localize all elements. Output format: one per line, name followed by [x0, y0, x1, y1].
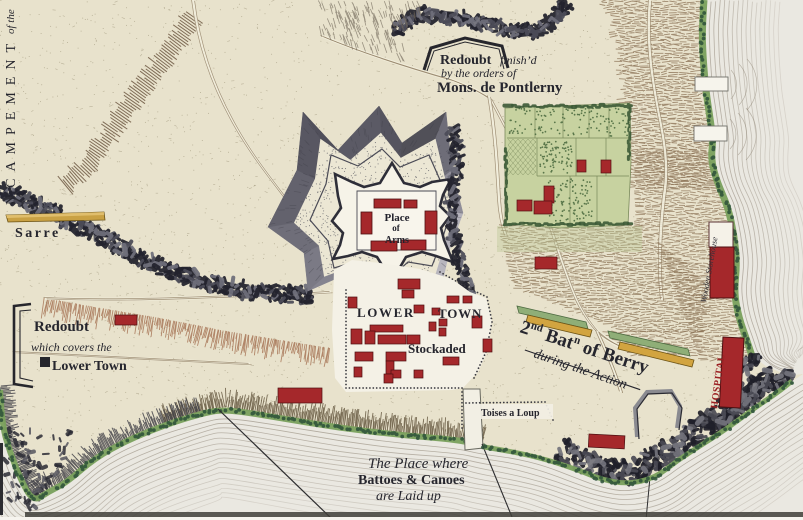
svg-text:Toises a Loup: Toises a Loup [481, 408, 540, 419]
svg-text:by the orders of: by the orders of [441, 66, 518, 80]
svg-text:which covers the: which covers the [31, 340, 112, 354]
svg-text:finish’d: finish’d [500, 53, 538, 67]
svg-text:Mons. de Pontlerny: Mons. de Pontlerny [437, 80, 563, 96]
svg-text:Arms: Arms [385, 235, 409, 246]
svg-text:Stockaded: Stockaded [408, 341, 467, 356]
svg-text:are Laid up: are Laid up [376, 489, 441, 504]
svg-text:of: of [392, 223, 401, 233]
svg-text:LOWER: LOWER [357, 305, 415, 320]
svg-text:TOWN: TOWN [438, 306, 482, 321]
svg-text:Redoubt: Redoubt [34, 319, 89, 335]
svg-text:of the: of the [5, 9, 17, 34]
svg-text:NCAMPEMENT: NCAMPEMENT [4, 37, 19, 205]
svg-text:The Place where: The Place where [368, 456, 469, 472]
svg-text:Lower Town: Lower Town [52, 359, 127, 374]
svg-text:Sarre: Sarre [15, 226, 61, 241]
svg-text:Battoes & Canoes: Battoes & Canoes [358, 473, 465, 488]
